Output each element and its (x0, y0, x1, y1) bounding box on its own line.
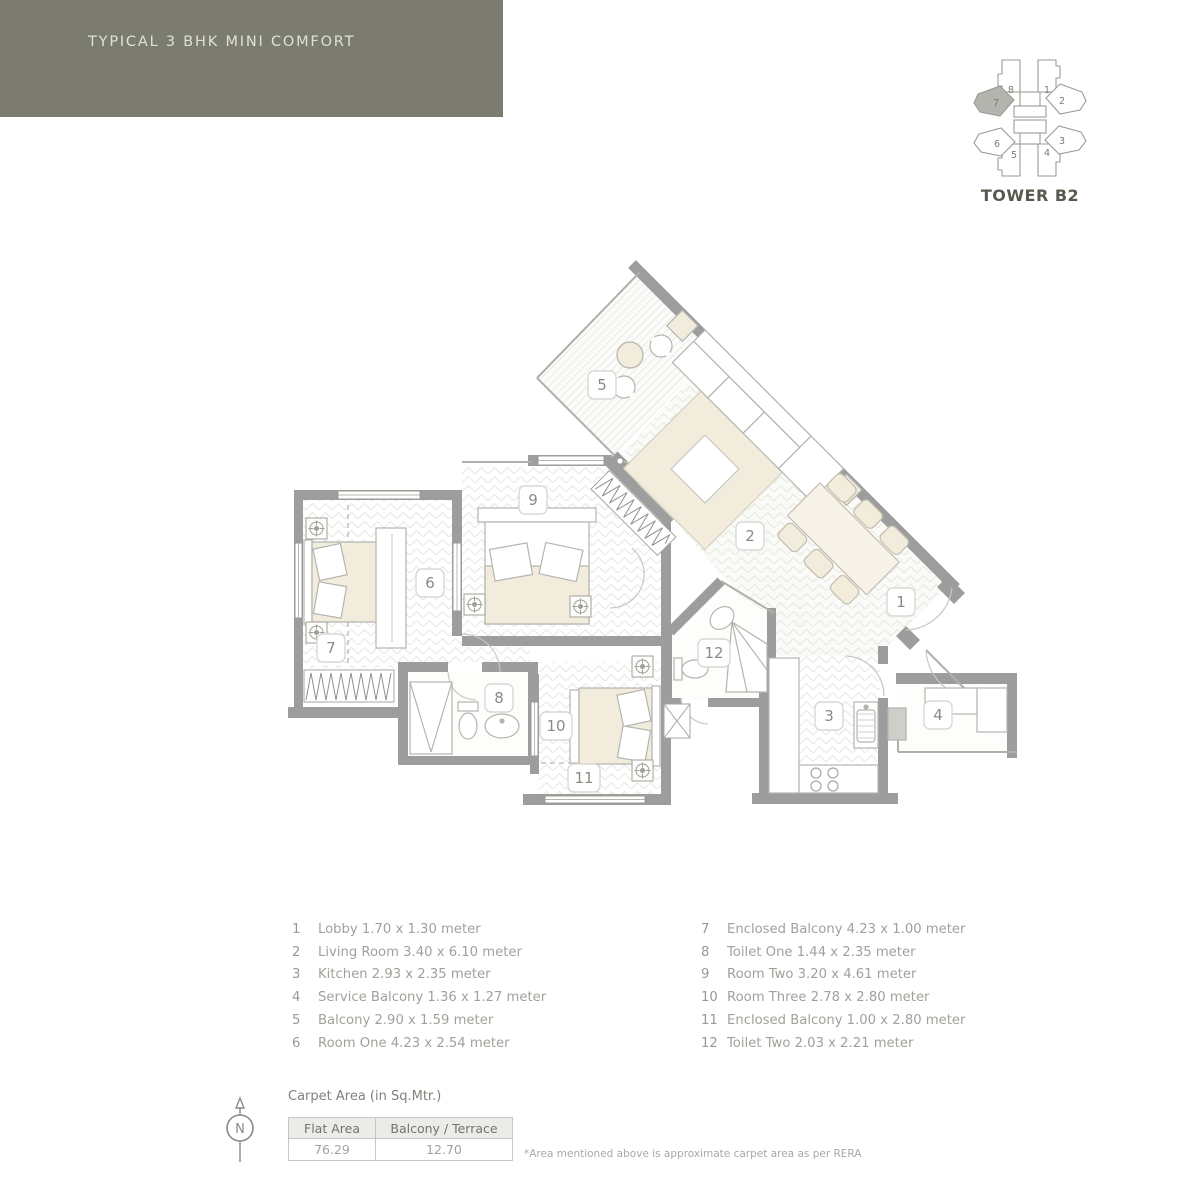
legend-item: 3 Kitchen 2.93 x 2.35 meter (292, 964, 632, 987)
room-label-11: 11 (568, 764, 600, 792)
appliance-icon (888, 708, 906, 740)
room-label-7: 7 (317, 634, 345, 662)
svg-text:12: 12 (704, 644, 723, 662)
shaft-icon (664, 704, 690, 738)
legend-item: 9 Room Two 3.20 x 4.61 meter (701, 964, 1041, 987)
wall (288, 707, 402, 718)
legend-item: 11 Enclosed Balcony 1.00 x 2.80 meter (701, 1009, 1041, 1032)
ac-unit-icon (632, 656, 653, 677)
legend-item-text: Toilet One 1.44 x 2.35 meter (727, 945, 1041, 960)
tower-core-link (1020, 92, 1040, 106)
legend-item-number: 4 (292, 990, 318, 1005)
legend-item-number: 9 (701, 967, 727, 982)
legend-item-number: 3 (292, 967, 318, 982)
toilet-icon (459, 713, 477, 739)
legend-item-text: Lobby 1.70 x 1.30 meter (318, 922, 632, 937)
svg-text:1: 1 (896, 593, 906, 611)
wardrobe-icon (376, 528, 406, 648)
legend-item-number: 11 (701, 1013, 727, 1028)
carpet-area-table: Flat Area Balcony / Terrace 76.29 12.70 (288, 1117, 513, 1161)
door-hinge (617, 458, 623, 464)
room-label-1: 1 (887, 588, 915, 616)
legend-item-text: Toilet Two 2.03 x 2.21 meter (727, 1036, 1041, 1051)
tower-unit-number: 5 (1011, 150, 1017, 161)
room-label-6: 6 (416, 569, 444, 597)
wall (752, 793, 898, 804)
carpet-value-balcony-terrace: 12.70 (376, 1139, 513, 1161)
svg-text:6: 6 (425, 574, 435, 592)
wall (878, 646, 888, 664)
legend-item-number: 1 (292, 922, 318, 937)
tower-core (1014, 120, 1046, 133)
carpet-col-flat-area: Flat Area (289, 1118, 376, 1139)
wall (708, 698, 776, 707)
legend-item-text: Balcony 2.90 x 1.59 meter (318, 1013, 632, 1028)
svg-text:10: 10 (546, 717, 565, 735)
legend-item-number: 7 (701, 922, 727, 937)
ac-unit-icon (306, 518, 327, 539)
room-label-3: 3 (815, 702, 843, 730)
wall (878, 698, 888, 793)
legend-item: 8 Toilet One 1.44 x 2.35 meter (701, 941, 1041, 964)
ac-unit-icon (464, 594, 485, 615)
svg-text:5: 5 (597, 376, 607, 394)
carpet-area-title: Carpet Area (in Sq.Mtr.) (288, 1089, 441, 1104)
legend-item-text: Room One 4.23 x 2.54 meter (318, 1036, 632, 1051)
rera-footnote: *Area mentioned above is approximate car… (524, 1148, 861, 1160)
legend-item: 7 Enclosed Balcony 4.23 x 1.00 meter (701, 918, 1041, 941)
legend-item-text: Service Balcony 1.36 x 1.27 meter (318, 990, 632, 1005)
room-label-2: 2 (736, 522, 764, 550)
legend-item: 2 Living Room 3.40 x 6.10 meter (292, 941, 632, 964)
tower-name: TOWER B2 (960, 186, 1100, 205)
legend-item: 5 Balcony 2.90 x 1.59 meter (292, 1009, 632, 1032)
tower-core-link (1020, 133, 1040, 144)
north-compass: N (220, 1096, 260, 1168)
svg-text:2: 2 (745, 527, 755, 545)
svg-text:11: 11 (574, 769, 593, 787)
louver-strip (304, 670, 394, 702)
svg-text:9: 9 (528, 491, 538, 509)
north-arrow-head (236, 1098, 244, 1108)
toilet-icon (674, 658, 682, 680)
svg-text:8: 8 (494, 689, 504, 707)
legend-item-text: Room Three 2.78 x 2.80 meter (727, 990, 1041, 1005)
tower-unit-number: 8 (1008, 85, 1014, 96)
legend-item-text: Enclosed Balcony 4.23 x 1.00 meter (727, 922, 1041, 937)
tower-unit-number: 7 (993, 98, 999, 109)
kitchen-counter (799, 765, 878, 793)
tower-core (1014, 106, 1046, 117)
tower-unit-number: 6 (994, 139, 1000, 150)
legend-item-text: Living Room 3.40 x 6.10 meter (318, 945, 632, 960)
room-label-12: 12 (698, 639, 730, 667)
carpet-col-balcony-terrace: Balcony / Terrace (376, 1118, 513, 1139)
ac-unit-icon (632, 760, 653, 781)
legend-item-text: Kitchen 2.93 x 2.35 meter (318, 967, 632, 982)
svg-text:7: 7 (326, 639, 336, 657)
legend-item-text: Room Two 3.20 x 4.61 meter (727, 967, 1041, 982)
page-title: TYPICAL 3 BHK MINI COMFORT (88, 34, 355, 50)
room-label-4: 4 (924, 701, 952, 729)
wall (398, 756, 538, 765)
tower-unit-number: 4 (1044, 148, 1050, 159)
tower-unit-number: 3 (1059, 136, 1065, 147)
svg-text:3: 3 (824, 707, 834, 725)
legend-item: 12 Toilet Two 2.03 x 2.21 meter (701, 1032, 1041, 1055)
legend-column-2: 7 Enclosed Balcony 4.23 x 1.00 meter 8 T… (701, 918, 1041, 1055)
room-label-10: 10 (540, 712, 572, 740)
sink-icon (854, 702, 878, 748)
legend-item: 4 Service Balcony 1.36 x 1.27 meter (292, 986, 632, 1009)
round-table-icon (617, 342, 643, 368)
legend-item: 1 Lobby 1.70 x 1.30 meter (292, 918, 632, 941)
shower-icon (410, 682, 452, 754)
toilet-icon (458, 702, 478, 711)
ac-unit-icon (570, 596, 591, 617)
tower-unit-number: 1 (1044, 85, 1050, 96)
legend-item-number: 12 (701, 1036, 727, 1051)
floor-plan: 1 2 3 4 5 6 7 8 (280, 258, 1020, 818)
washbasin-icon (485, 714, 519, 738)
legend-item-number: 8 (701, 945, 727, 960)
legend-item-number: 10 (701, 990, 727, 1005)
bed-icon-room-three (570, 686, 660, 766)
legend-item-number: 6 (292, 1036, 318, 1051)
legend-item: 6 Room One 4.23 x 2.54 meter (292, 1032, 632, 1055)
tower-unit-number: 2 (1059, 96, 1065, 107)
header-band: TYPICAL 3 BHK MINI COMFORT (0, 0, 503, 117)
tower-key-plan: 8 1 7 2 6 3 5 4 (960, 48, 1100, 183)
kitchen-counter (769, 658, 799, 793)
legend-item: 10 Room Three 2.78 x 2.80 meter (701, 986, 1041, 1009)
carpet-value-flat-area: 76.29 (289, 1139, 376, 1161)
room-label-8: 8 (485, 684, 513, 712)
legend-item-text: Enclosed Balcony 1.00 x 2.80 meter (727, 1013, 1041, 1028)
legend-item-number: 5 (292, 1013, 318, 1028)
wall (462, 636, 668, 646)
room-label-5: 5 (588, 371, 616, 399)
room-label-9: 9 (519, 486, 547, 514)
wall (663, 628, 672, 707)
svg-text:4: 4 (933, 706, 943, 724)
legend-item-number: 2 (292, 945, 318, 960)
north-label: N (235, 1122, 245, 1137)
wall (896, 673, 1017, 684)
legend-column-1: 1 Lobby 1.70 x 1.30 meter 2 Living Room … (292, 918, 632, 1055)
wall (1007, 673, 1017, 758)
